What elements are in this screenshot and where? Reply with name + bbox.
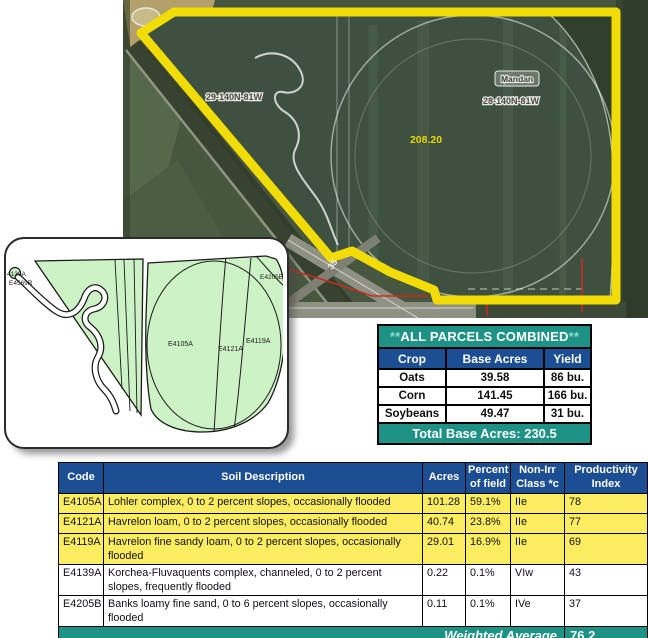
crop-row: Soybeans49.4731 bu. xyxy=(378,405,591,423)
soil-cell-desc: Lohler complex, 0 to 2 percent slopes, o… xyxy=(104,493,423,513)
crop-cell: 166 bu. xyxy=(544,387,591,405)
soil-table: CodeSoil DescriptionAcresPercent of fiel… xyxy=(58,462,648,638)
soil-cell-cls: VIw xyxy=(511,564,565,595)
soil-label-main: E4105A xyxy=(168,341,193,348)
soil-cell-acres: 0.22 xyxy=(423,564,466,595)
soil-cell-cls: IIe xyxy=(511,513,565,533)
soil-cell-code: E4105A xyxy=(59,493,104,513)
soil-cell-desc: Banks loamy fine sand, 0 to 6 percent sl… xyxy=(104,595,423,626)
total-base-acres: Total Base Acres: 230.5 xyxy=(378,423,591,444)
soil-cell-code: E4121A xyxy=(59,513,104,533)
soil-cell-acres: 101.28 xyxy=(423,493,466,513)
crop-cell: 49.47 xyxy=(446,405,544,423)
crop-table-footer-row: Total Base Acres: 230.5 xyxy=(378,423,591,444)
city-label: Mandan xyxy=(501,74,533,84)
soil-col-header: Soil Description xyxy=(104,463,423,494)
crop-cell: Corn xyxy=(378,387,446,405)
soil-cell-acres: 0.11 xyxy=(423,595,466,626)
soil-table-header-row: CodeSoil DescriptionAcresPercent of fiel… xyxy=(59,463,648,494)
crop-table-title-row: **ALL PARCELS COMBINED** xyxy=(378,325,591,348)
weighted-average-value: 76.2 xyxy=(565,626,648,638)
soil-col-header: Productivity Index xyxy=(565,463,648,494)
section-label-left: 29-140N-81W xyxy=(206,92,263,102)
soil-col-header: Code xyxy=(59,463,104,494)
crop-cell: 141.45 xyxy=(446,387,544,405)
soil-col-header: Non-Irr Class *c xyxy=(511,463,565,494)
soil-cell-pi: 43 xyxy=(565,564,648,595)
soil-label-right: E4119A xyxy=(246,338,271,345)
soil-cell-pct: 16.9% xyxy=(466,533,511,564)
page-canvas: 29-140N-81W Mandan 28-140N-81W 208.20 35 xyxy=(0,0,648,638)
soil-cell-pct: 59.1% xyxy=(466,493,511,513)
soil-cell-desc: Havrelon loam, 0 to 2 percent slopes, oc… xyxy=(104,513,423,533)
crop-cell: 39.58 xyxy=(446,369,544,387)
soil-cell-code: E4139A xyxy=(59,564,104,595)
soil-row: E4105ALohler complex, 0 to 2 percent slo… xyxy=(59,493,648,513)
right-tree-strip xyxy=(623,0,648,318)
yield-col-header: Yield xyxy=(544,348,591,369)
soil-row: E4119AHavrelon fine sandy loam, 0 to 2 p… xyxy=(59,533,648,564)
soil-map-svg: 4139A E4569R E4205B E4105A E4121A E4119A xyxy=(6,239,283,443)
title-asterisks-left: ** xyxy=(390,329,401,344)
soil-table-body: E4105ALohler complex, 0 to 2 percent slo… xyxy=(59,493,648,626)
soil-cell-pi: 78 xyxy=(565,493,648,513)
title-text: ALL PARCELS COMBINED xyxy=(400,329,568,344)
soil-row: E4139AKorchea-Fluvaquents complex, chann… xyxy=(59,564,648,595)
base-acres-col-header: Base Acres xyxy=(446,348,544,369)
title-asterisks-right: ** xyxy=(569,329,580,344)
soil-cell-pi: 77 xyxy=(565,513,648,533)
acreage-label: 208.20 xyxy=(410,134,442,146)
soil-cell-pi: 37 xyxy=(565,595,648,626)
crop-table-body: Oats39.5886 bu.Corn141.45166 bu.Soybeans… xyxy=(378,369,591,423)
crop-col-header: Crop xyxy=(378,348,446,369)
soil-cell-code: E4119A xyxy=(59,533,104,564)
soil-cell-desc: Havrelon fine sandy loam, 0 to 2 percent… xyxy=(104,533,423,564)
soil-label-tiny-bottom: E4569R xyxy=(9,280,33,287)
crop-table-header-row: Crop Base Acres Yield xyxy=(378,348,591,369)
soil-cell-pi: 69 xyxy=(565,533,648,564)
soil-label-mid: E4121A xyxy=(218,346,243,353)
crop-cell: Soybeans xyxy=(378,405,446,423)
soil-cell-pct: 23.8% xyxy=(466,513,511,533)
section-label-right: 28-140N-81W xyxy=(483,96,540,106)
soil-table-footer-row: Weighted Average 76.2 xyxy=(59,626,648,638)
soil-cell-cls: IVe xyxy=(511,595,565,626)
soil-col-header: Percent of field xyxy=(466,463,511,494)
crop-cell: Oats xyxy=(378,369,446,387)
soil-col-header: Acres xyxy=(423,463,466,494)
soil-cell-desc: Korchea-Fluvaquents complex, channeled, … xyxy=(104,564,423,595)
soil-cell-acres: 40.74 xyxy=(423,513,466,533)
crop-table: **ALL PARCELS COMBINED** Crop Base Acres… xyxy=(377,324,592,445)
soil-row: E4121AHavrelon loam, 0 to 2 percent slop… xyxy=(59,513,648,533)
soil-cell-code: E4205B xyxy=(59,595,104,626)
soil-label-tiny-top: 4139A xyxy=(7,271,26,278)
crop-table-title: **ALL PARCELS COMBINED** xyxy=(378,325,591,348)
soil-cell-acres: 29.01 xyxy=(423,533,466,564)
weighted-average-label: Weighted Average xyxy=(59,626,565,638)
soil-row: E4205BBanks loamy fine sand, 0 to 6 perc… xyxy=(59,595,648,626)
soil-cell-cls: IIe xyxy=(511,533,565,564)
soil-cell-pct: 0.1% xyxy=(466,564,511,595)
crop-cell: 31 bu. xyxy=(544,405,591,423)
crop-row: Oats39.5886 bu. xyxy=(378,369,591,387)
soil-label-corner: E4205B xyxy=(260,274,283,281)
soil-map-panel: 4139A E4569R E4205B E4105A E4121A E4119A xyxy=(4,237,289,449)
crop-cell: 86 bu. xyxy=(544,369,591,387)
soil-cell-cls: IIe xyxy=(511,493,565,513)
soil-cell-pct: 0.1% xyxy=(466,595,511,626)
crop-row: Corn141.45166 bu. xyxy=(378,387,591,405)
